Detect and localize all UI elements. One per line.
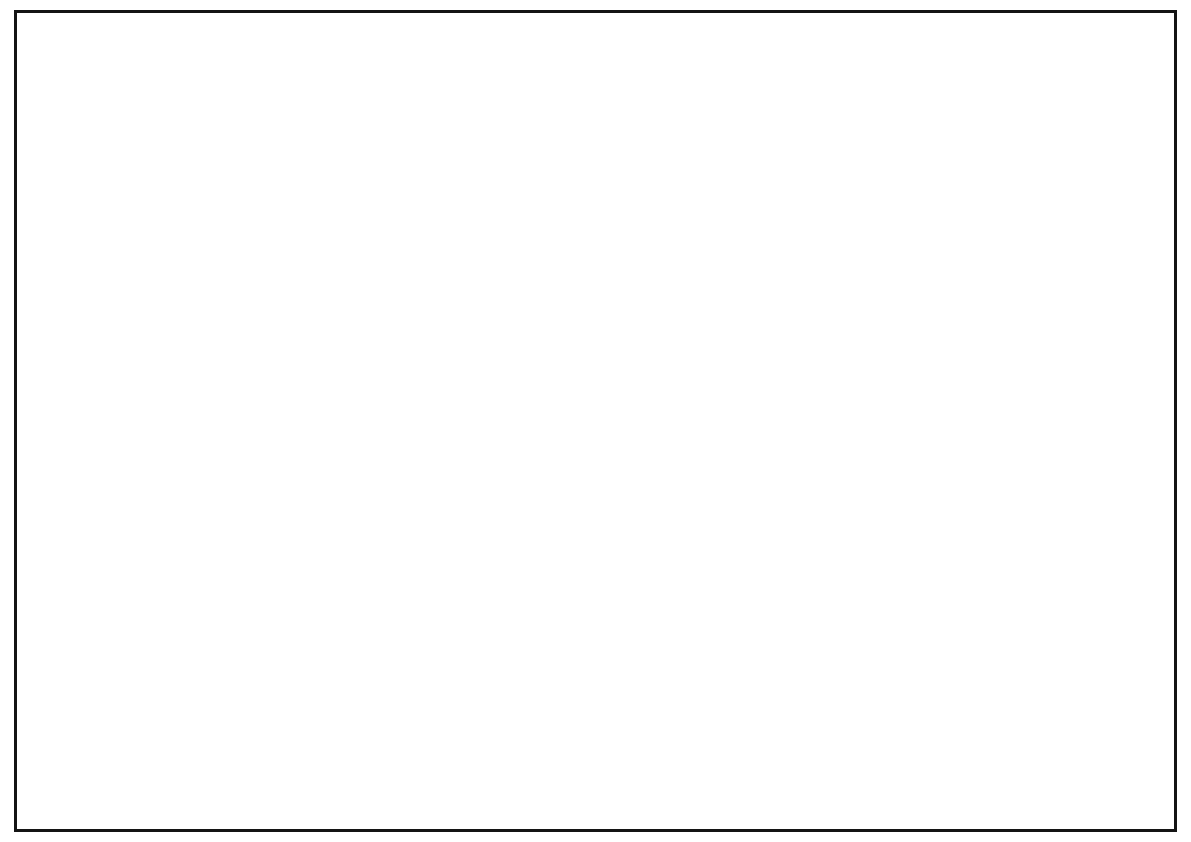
row-label: 总经理 [1025, 703, 1177, 735]
row-operation: 经 营 [1025, 627, 1177, 700]
row-design-dept: 设计部 [1025, 555, 1177, 627]
row-shop-number: 铺位号 [1025, 335, 1177, 372]
note-box: 注 装修效果图以此图纸为依据 材料以施工图为准 如有更改需通知设计师 装修现场不… [1025, 138, 1177, 335]
note-title: 注 [1035, 147, 1169, 173]
row-label: 设计部 [1025, 558, 1177, 590]
title-block: 注 装修效果图以此图纸为依据 材料以施工图为准 如有更改需通知设计师 装修现场不… [1022, 10, 1177, 832]
door-handle [472, 702, 475, 714]
row-area: 面 积 [1025, 445, 1177, 482]
row-label: 业 态 [1025, 411, 1177, 443]
row-general-manager: 总经理 [1025, 700, 1177, 832]
row-label: 面 积 [1025, 448, 1177, 480]
row-label: 经 营 [1025, 630, 1177, 662]
row-business-type: 业 态 [1025, 408, 1177, 445]
row-label: 业 主 [1025, 485, 1177, 517]
row-owner: 业 主 [1025, 482, 1177, 555]
note-body: 装修效果图以此图纸为依据 材料以施工图为准 如有更改需通知设计师 装修现场不得遮… [1035, 174, 1169, 356]
row-label: 铺位号 [1025, 338, 1177, 370]
row-shop-name: 店 名 [1025, 372, 1177, 408]
row-label: 店 名 [1025, 375, 1177, 407]
interior-render [0, 0, 1191, 842]
drawing-sheet [0, 0, 1191, 842]
title-block-empty-box [1025, 10, 1177, 138]
door-handle [466, 700, 469, 712]
